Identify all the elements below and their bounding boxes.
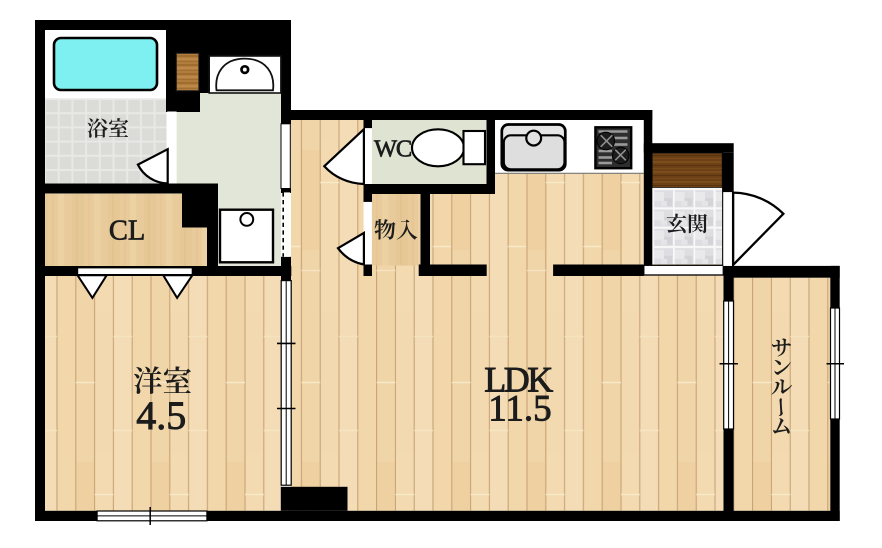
svg-text:11.5: 11.5 [488, 389, 551, 430]
svg-text:CL: CL [109, 215, 145, 246]
svg-text:WC: WC [374, 136, 411, 163]
svg-text:4.5: 4.5 [136, 393, 186, 438]
